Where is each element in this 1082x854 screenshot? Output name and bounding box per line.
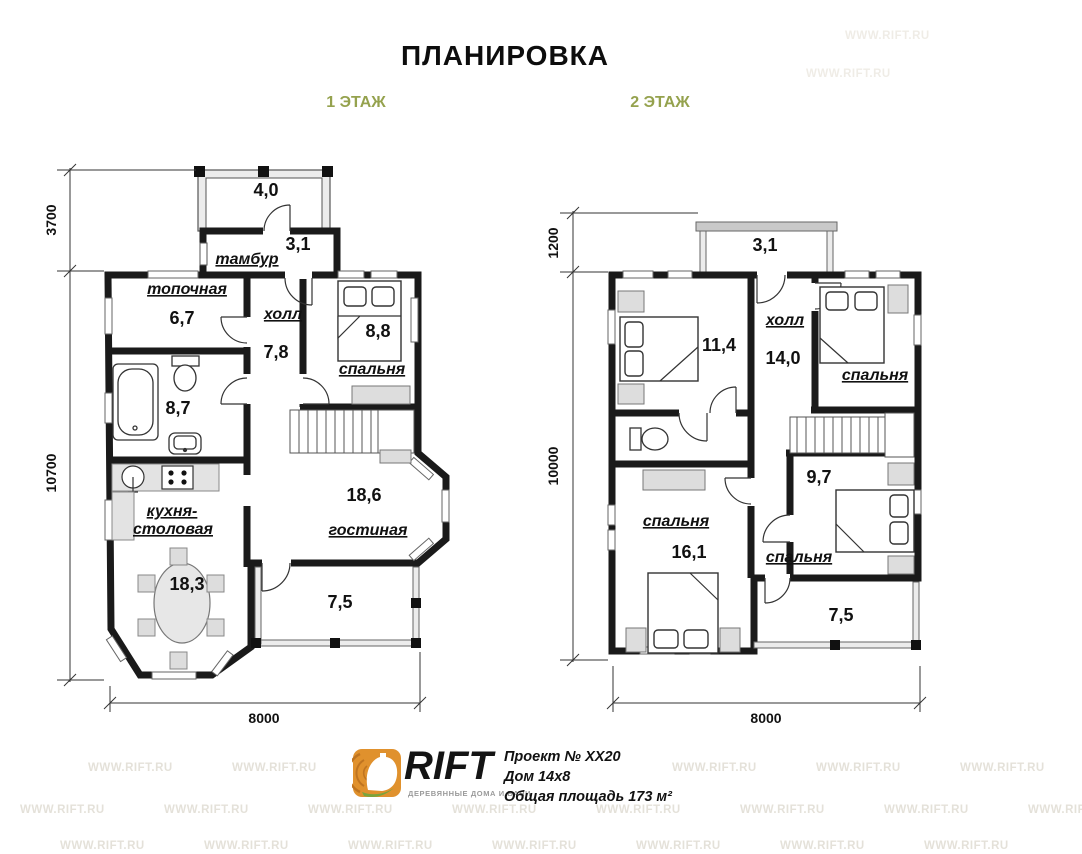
- brand-name: RIFT: [404, 744, 493, 789]
- house-size: Дом 14х8: [504, 769, 570, 785]
- bedroom1-label: спальня: [339, 361, 406, 378]
- wardrobe-icon: [618, 291, 644, 312]
- tambour-label: тамбур: [215, 251, 278, 268]
- wardrobe-icon: [352, 386, 410, 404]
- floor2-plan: 3,1 11,4 холл 14,0 спальня спальня 16,1 …: [545, 207, 926, 726]
- bedroom2-3-area: 16,1: [671, 542, 706, 562]
- bedroom2-2-label: спальня: [842, 367, 909, 384]
- hall-area: 7,8: [263, 342, 288, 362]
- wardrobe-icon: [888, 463, 914, 485]
- boiler-area: 6,7: [169, 308, 194, 328]
- floor1-plan: 4,0 3,1 тамбур топочная 6,7 холл 7,8 8,8…: [43, 164, 449, 726]
- kitchen-label-2: столовая: [133, 521, 214, 538]
- staircase-floor2: [790, 413, 914, 457]
- terrace1-area: 7,5: [327, 592, 352, 612]
- wardrobe-icon: [643, 470, 705, 490]
- bed-icon: [648, 573, 718, 653]
- dim-3700: 3700: [43, 204, 59, 235]
- sink-icon: [169, 433, 201, 454]
- stove-icon: [162, 466, 193, 489]
- hall2-area: 14,0: [765, 348, 800, 368]
- kitchen-area: 18,3: [169, 574, 204, 594]
- total-area: Общая площадь 173 м²: [504, 789, 672, 805]
- balcony-area: 3,1: [752, 235, 777, 255]
- dim-1200: 1200: [545, 227, 561, 258]
- porch-area: 4,0: [253, 180, 278, 200]
- hall-label: холл: [263, 306, 302, 323]
- bedroom1-area: 8,8: [365, 321, 390, 341]
- bed-icon: [620, 317, 698, 381]
- rift-logo-icon: [352, 748, 402, 798]
- hall2-label: холл: [765, 312, 804, 329]
- living-label: гостиная: [329, 522, 408, 539]
- floor-plan-page: WWW.RIFT.RU WWW.RIFT.RU WWW.RIFT.RU WWW.…: [0, 0, 1082, 854]
- tambour-area: 3,1: [285, 234, 310, 254]
- tambour-window: [200, 243, 207, 265]
- bed-icon: [820, 287, 884, 363]
- floor-plans-drawing: 4,0 3,1 тамбур топочная 6,7 холл 7,8 8,8…: [0, 0, 1082, 854]
- wardrobe-icon: [618, 384, 644, 404]
- bedroom2-4-label: спальня: [766, 549, 833, 566]
- kitchen-label-1: кухня-: [147, 503, 198, 520]
- dim-8000-f2: 8000: [750, 710, 781, 726]
- bathtub-icon: [113, 364, 158, 440]
- dim-10700: 10700: [43, 453, 59, 492]
- bath-area: 8,7: [165, 398, 190, 418]
- bedroom2-3-label: спальня: [643, 513, 710, 530]
- fridge-icon: [112, 492, 134, 540]
- bedroom2-4-area: 9,7: [806, 467, 831, 487]
- bed-icon: [836, 490, 914, 552]
- nightstand-icon: [720, 628, 740, 652]
- wardrobe-icon: [888, 556, 914, 574]
- terrace2-area: 7,5: [828, 605, 853, 625]
- bedroom2-1-area: 11,4: [702, 335, 736, 355]
- living-area: 18,6: [346, 485, 381, 505]
- toilet-icon: [630, 428, 668, 450]
- nightstand-icon: [626, 628, 646, 652]
- boiler-label: топочная: [147, 281, 227, 298]
- wardrobe-icon: [888, 285, 908, 313]
- dim-8000-f1: 8000: [248, 710, 279, 726]
- dim-10000: 10000: [545, 446, 561, 485]
- project-number: Проект № ХХ20: [504, 749, 621, 765]
